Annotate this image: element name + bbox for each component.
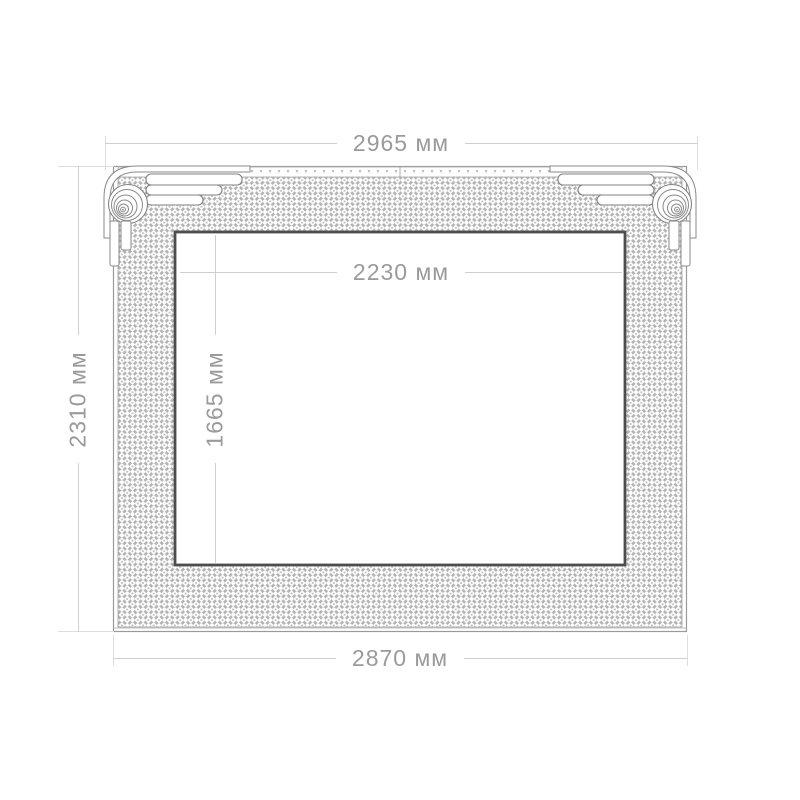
dim-line <box>78 463 79 632</box>
dim-line <box>78 166 79 335</box>
dim-line <box>465 272 622 273</box>
dim-bottom-width: 2870 мм <box>113 644 687 672</box>
frame-drawing <box>0 0 800 800</box>
dim-label-box: 1665 мм <box>201 347 229 451</box>
dim-outer-width: 2965 мм <box>105 129 697 157</box>
extension-line-bottom-right <box>687 635 688 666</box>
dim-inner-width: 2230 мм <box>180 258 622 286</box>
dim-label-inner-height: 1665 мм <box>204 351 227 447</box>
dim-label-bottom-width: 2870 мм <box>352 647 448 670</box>
dim-inner-height: 1665 мм <box>200 235 230 563</box>
drawing-canvas: 2965 мм 2230 мм 2870 мм 2310 мм 1665 мм <box>0 0 800 800</box>
dim-line <box>464 658 687 659</box>
dim-label-inner-width: 2230 мм <box>353 261 449 284</box>
dim-line <box>215 463 216 563</box>
dim-line <box>215 235 216 335</box>
extension-line-top-right <box>697 136 698 170</box>
dim-label-box: 2310 мм <box>64 347 92 451</box>
dim-line <box>105 143 337 144</box>
dim-label-outer-width: 2965 мм <box>353 132 449 155</box>
dim-outer-height: 2310 мм <box>63 166 93 632</box>
dim-label-outer-height: 2310 мм <box>67 351 90 447</box>
dim-line <box>113 658 336 659</box>
dim-line <box>465 143 697 144</box>
